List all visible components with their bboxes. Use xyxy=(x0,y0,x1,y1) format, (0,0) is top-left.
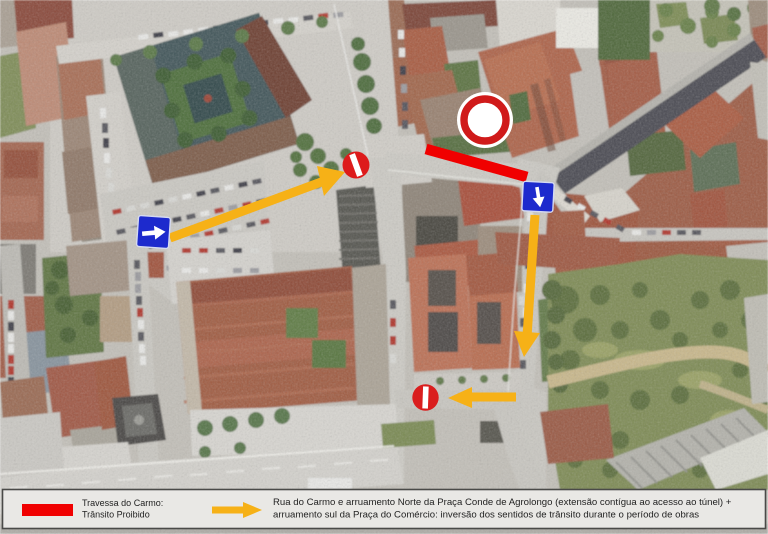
svg-text:Rua do Carmo e arruamento Nort: Rua do Carmo e arruamento Norte da Praça… xyxy=(273,497,732,508)
svg-text:arruamento sul da Praça do Com: arruamento sul da Praça do Comércio: inv… xyxy=(273,510,699,521)
svg-text:Travessa do Carmo:: Travessa do Carmo: xyxy=(82,498,163,508)
svg-text:Trânsito Proibido: Trânsito Proibido xyxy=(82,510,150,520)
